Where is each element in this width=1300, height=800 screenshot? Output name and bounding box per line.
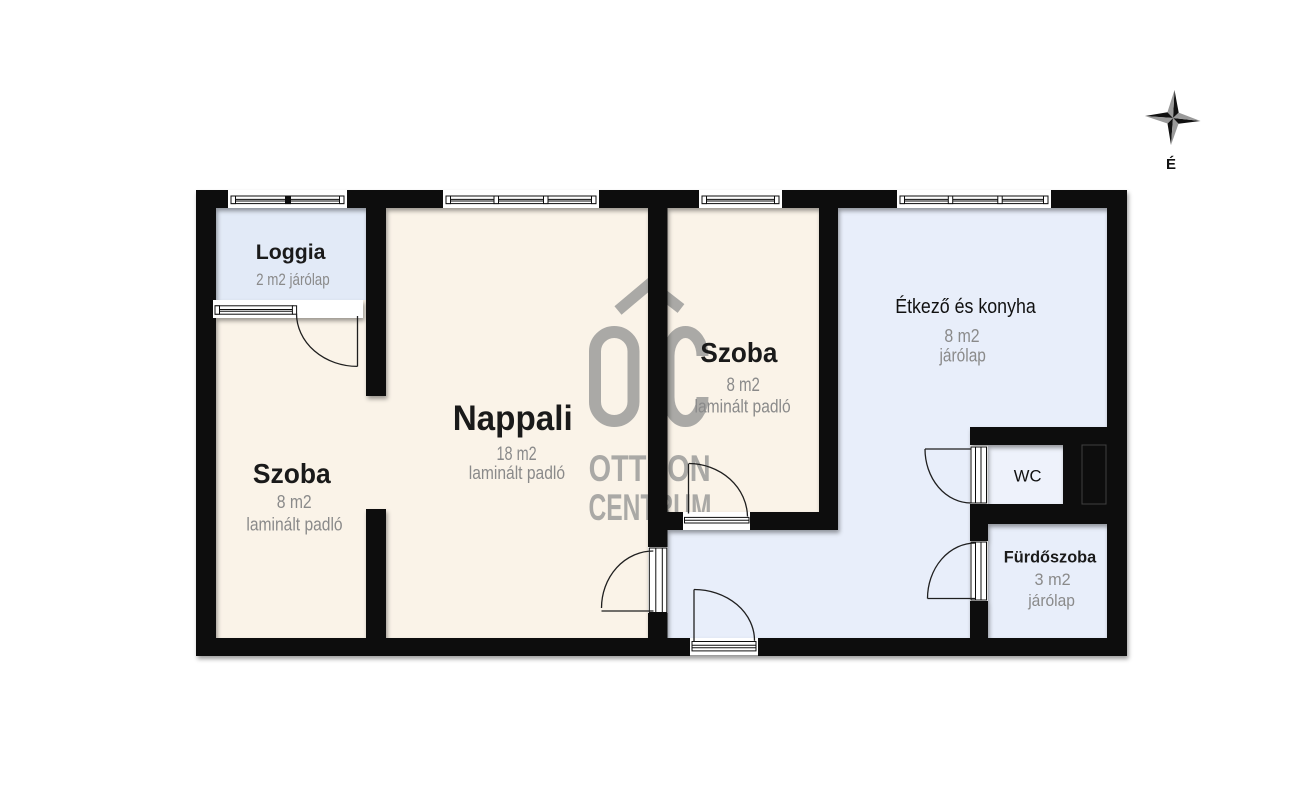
svg-text:laminált padló: laminált padló — [695, 397, 791, 417]
svg-text:járólap: járólap — [939, 346, 986, 366]
svg-text:8 m2: 8 m2 — [277, 491, 312, 512]
svg-text:3 m2: 3 m2 — [1035, 570, 1071, 589]
svg-text:18 m2: 18 m2 — [497, 444, 537, 465]
svg-text:laminált padló: laminált padló — [246, 515, 342, 535]
svg-text:8 m2: 8 m2 — [726, 375, 760, 396]
svg-text:Nappali: Nappali — [453, 399, 573, 438]
svg-text:Fürdőszoba: Fürdőszoba — [1004, 549, 1097, 567]
svg-text:2 m2 járólap: 2 m2 járólap — [256, 270, 330, 289]
svg-text:WC: WC — [1014, 467, 1042, 486]
svg-text:laminált padló: laminált padló — [469, 463, 565, 483]
svg-text:járólap: járólap — [1027, 591, 1075, 610]
svg-text:É: É — [1166, 156, 1176, 173]
svg-text:Loggia: Loggia — [256, 241, 326, 264]
svg-text:8 m2: 8 m2 — [944, 325, 979, 346]
svg-text:Étkező és konyha: Étkező és konyha — [895, 295, 1036, 318]
svg-text:Szoba: Szoba — [253, 458, 331, 489]
svg-text:Szoba: Szoba — [700, 337, 777, 368]
